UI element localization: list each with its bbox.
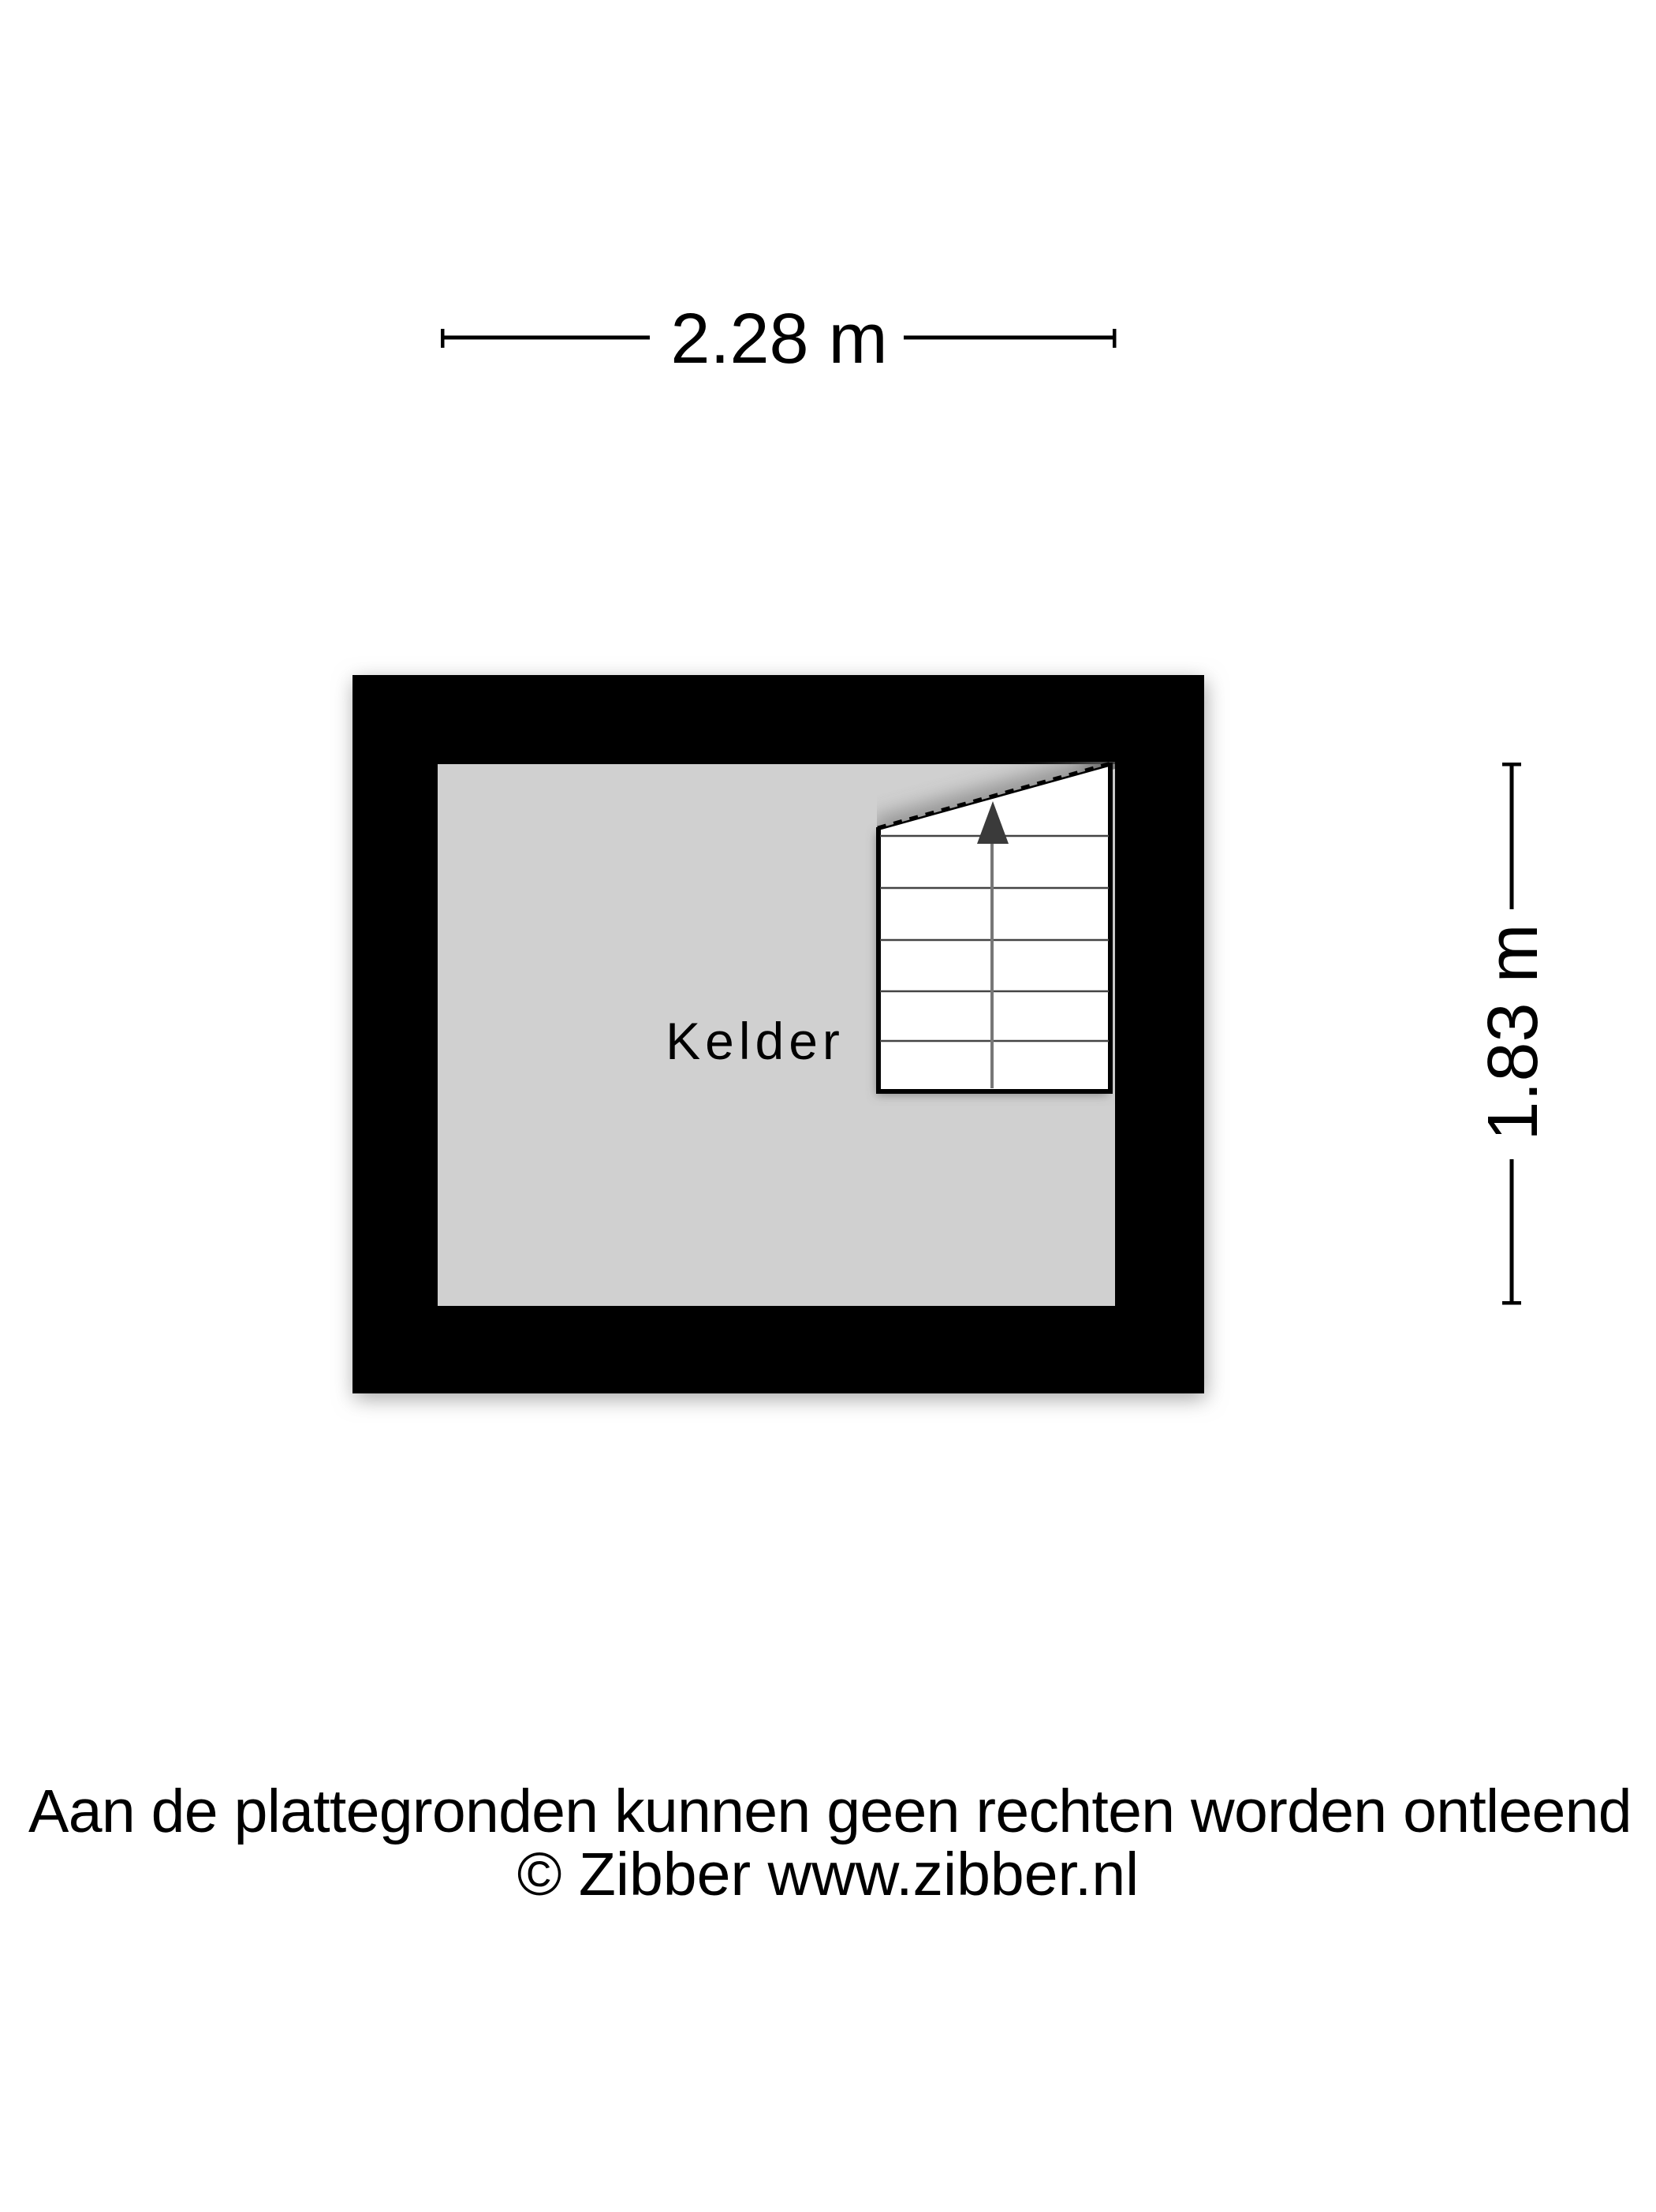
svg-text:© Zibber www.zibber.nl: © Zibber www.zibber.nl: [517, 1841, 1139, 1908]
svg-text:1.83 m: 1.83 m: [1474, 923, 1553, 1140]
svg-text:Kelder: Kelder: [666, 1012, 845, 1070]
svg-text:Aan de plattegronden kunnen ge: Aan de plattegronden kunnen geen rechten…: [28, 1777, 1632, 1845]
svg-text:2.28 m: 2.28 m: [670, 300, 887, 379]
